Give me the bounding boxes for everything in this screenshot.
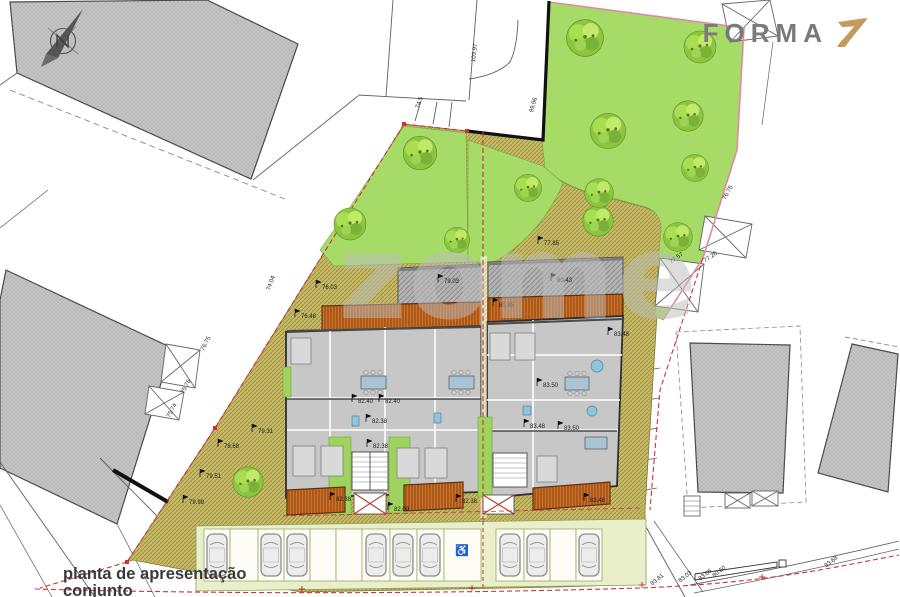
- tree-icon: [681, 154, 708, 181]
- svg-text:83.48: 83.48: [590, 498, 606, 504]
- tree-icon: [567, 20, 604, 57]
- svg-text:79.31: 79.31: [258, 429, 274, 435]
- svg-text:82.09: 82.09: [394, 507, 410, 513]
- parking-stall: [550, 529, 576, 581]
- svg-text:82.38: 82.38: [336, 497, 352, 503]
- tree-icon: [590, 113, 625, 148]
- neighbor-building-far-east: [818, 344, 898, 492]
- tree-icon: [664, 223, 693, 252]
- svg-text:82.40: 82.40: [358, 399, 374, 405]
- svg-text:83.81: 83.81: [650, 573, 666, 587]
- parking-stall: [310, 529, 336, 581]
- tree-icon: [583, 206, 613, 236]
- tree-icon: [673, 101, 703, 131]
- svg-text:74.04: 74.04: [266, 275, 277, 292]
- svg-text:76.75: 76.75: [200, 335, 213, 352]
- elevation-label: 83.81: [650, 573, 666, 587]
- neighbor-building-west: [0, 270, 172, 524]
- car-icon: [287, 534, 307, 576]
- elevation-label: 74.04: [266, 275, 277, 292]
- handicap-icon: ♿: [455, 544, 469, 557]
- car-icon: [366, 534, 386, 576]
- logo-z-icon: [834, 16, 870, 50]
- tree-icon: [585, 179, 614, 208]
- car-icon: [261, 534, 281, 576]
- elevation-label: 76.75: [200, 335, 213, 352]
- forma-z-logo: FORMA: [703, 16, 870, 50]
- svg-text:99.96: 99.96: [529, 96, 539, 113]
- tree-icon: [444, 227, 470, 253]
- title-line-1: planta de apresentação: [63, 566, 246, 583]
- svg-text:82.40: 82.40: [385, 399, 401, 405]
- svg-text:80.45: 80.45: [499, 303, 515, 309]
- svg-text:82.38: 82.38: [462, 499, 478, 505]
- svg-text:103.97: 103.97: [471, 43, 479, 63]
- parking-cars: [207, 534, 599, 576]
- svg-text:83.50: 83.50: [564, 426, 580, 432]
- svg-text:78.68: 78.68: [224, 444, 240, 450]
- svg-text:80.43: 80.43: [557, 278, 573, 284]
- elevation-label: 83.03: [678, 570, 694, 584]
- svg-text:83.03: 83.03: [678, 570, 694, 584]
- drawing-title: planta de apresentação conjunto: [63, 566, 246, 597]
- car-icon: [420, 534, 440, 576]
- svg-text:74.5: 74.5: [415, 96, 425, 110]
- svg-text:76.03: 76.03: [322, 285, 338, 291]
- elevation-label: 103.97: [471, 43, 479, 63]
- car-icon: [393, 534, 413, 576]
- tree-icon: [514, 174, 541, 201]
- tree-icon: [233, 467, 263, 497]
- tree-icon: [403, 136, 437, 170]
- parking-area: ♿: [196, 519, 646, 592]
- svg-text:82.38: 82.38: [373, 444, 389, 450]
- car-icon: [500, 534, 520, 576]
- elevation-label: 99.96: [529, 96, 539, 113]
- site-plan-canvas: ♿: [0, 0, 900, 597]
- parking-stall: [336, 529, 362, 581]
- svg-text:83.50: 83.50: [543, 383, 559, 389]
- title-line-2: conjunto: [63, 583, 246, 597]
- svg-text:83.48: 83.48: [614, 332, 630, 338]
- svg-text:79.51: 79.51: [206, 474, 222, 480]
- elevation-label: 74.5: [415, 96, 425, 110]
- site-plan-page: ♿: [0, 0, 900, 597]
- car-icon: [579, 534, 599, 576]
- svg-text:77.85: 77.85: [544, 241, 560, 247]
- logo-text: FORMA: [703, 18, 828, 49]
- neighbor-building-east: [676, 326, 806, 508]
- svg-text:79.03: 79.03: [444, 279, 460, 285]
- tree-icon: [334, 208, 366, 240]
- svg-text:82.38: 82.38: [372, 419, 388, 425]
- svg-text:79.99: 79.99: [189, 500, 205, 506]
- svg-text:76.48: 76.48: [301, 314, 317, 320]
- neighbor-building-northwest: [10, 0, 298, 179]
- car-icon: [527, 534, 547, 576]
- svg-text:83.48: 83.48: [530, 424, 546, 430]
- deck-lower-2: [404, 482, 463, 511]
